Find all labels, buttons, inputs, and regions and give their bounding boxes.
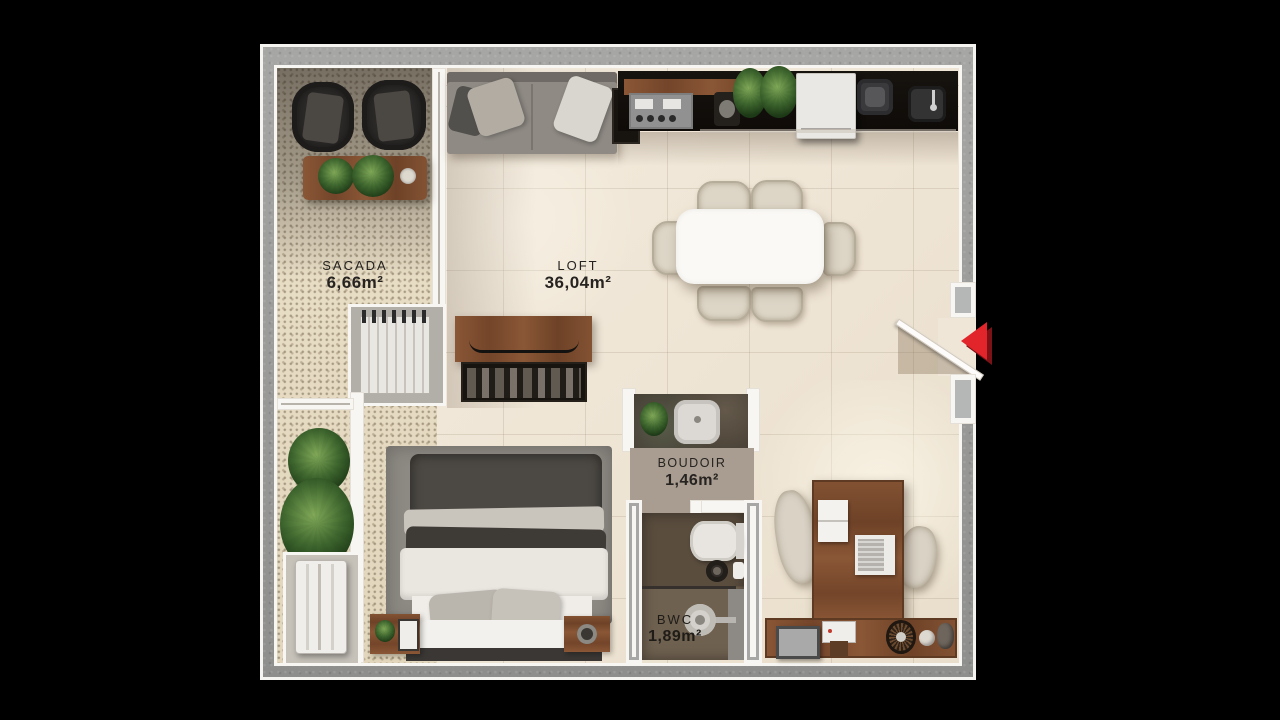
entrance-jamb-bottom — [950, 374, 976, 424]
room-name: SACADA — [300, 258, 410, 273]
jamb-glass — [955, 380, 971, 418]
room-name: LOFT — [520, 258, 636, 273]
jamb-glass — [955, 287, 971, 313]
entrance-jamb-top — [950, 282, 976, 318]
room-name: BWC — [638, 612, 712, 627]
floorplan-canvas: SACADA 6,66m² — [0, 0, 1280, 720]
room-label-bwc: BWC 1,89m² — [638, 612, 712, 647]
room-area: 1,89m² — [638, 627, 712, 647]
room-label-boudoir: BOUDOIR 1,46m² — [636, 456, 748, 491]
room-name: BOUDOIR — [636, 456, 748, 471]
room-area: 6,66m² — [300, 273, 410, 293]
room-area: 36,04m² — [520, 273, 636, 293]
room-label-loft: LOFT 36,04m² — [520, 258, 636, 293]
entrance-arrow-icon — [961, 322, 987, 360]
room-label-sacada: SACADA 6,66m² — [300, 258, 410, 293]
room-area: 1,46m² — [636, 471, 748, 491]
